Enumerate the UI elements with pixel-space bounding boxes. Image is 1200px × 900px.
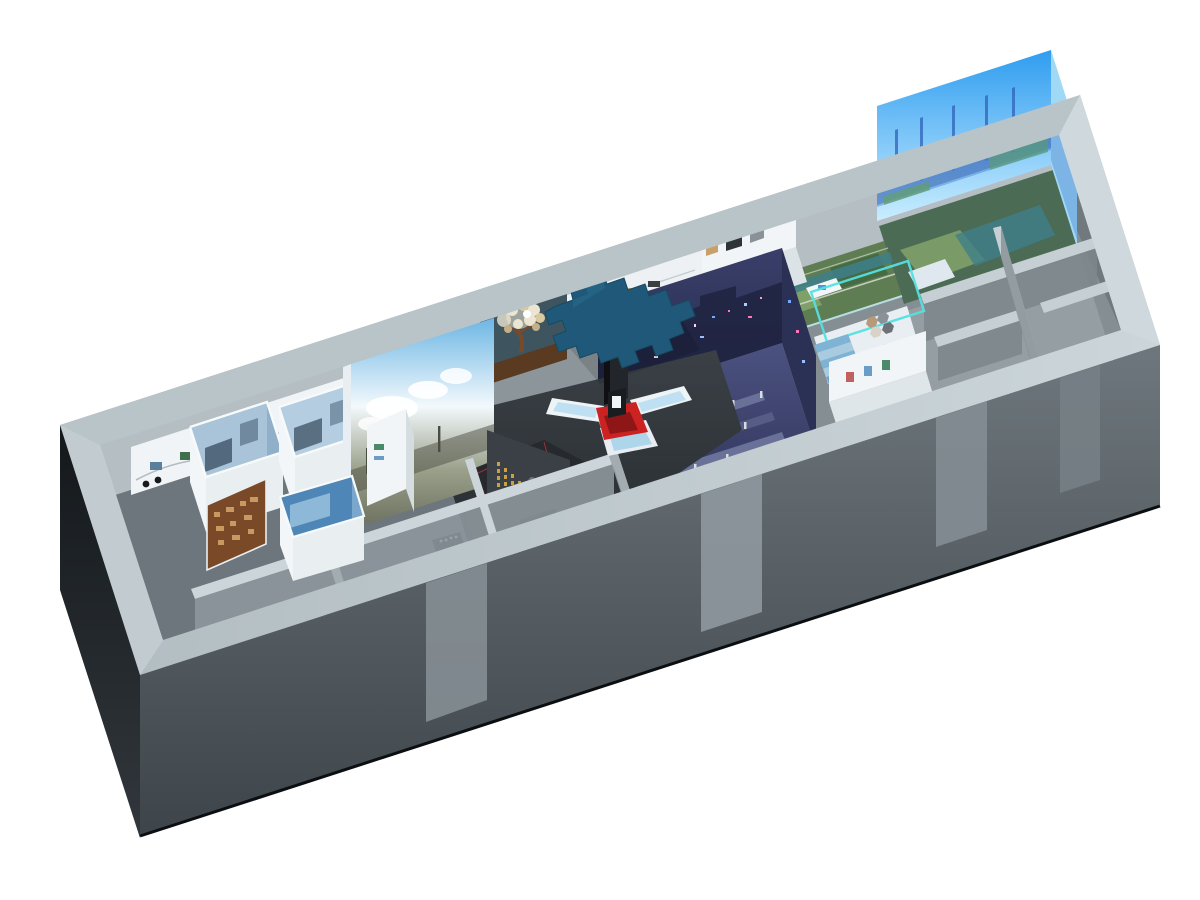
kiosk-console-label xyxy=(612,396,621,408)
poster-1 xyxy=(846,372,854,382)
exhibition-hall-render xyxy=(0,0,1200,900)
hall-canvas xyxy=(0,0,1200,900)
poster-2 xyxy=(864,366,872,376)
poster-3 xyxy=(882,360,890,370)
